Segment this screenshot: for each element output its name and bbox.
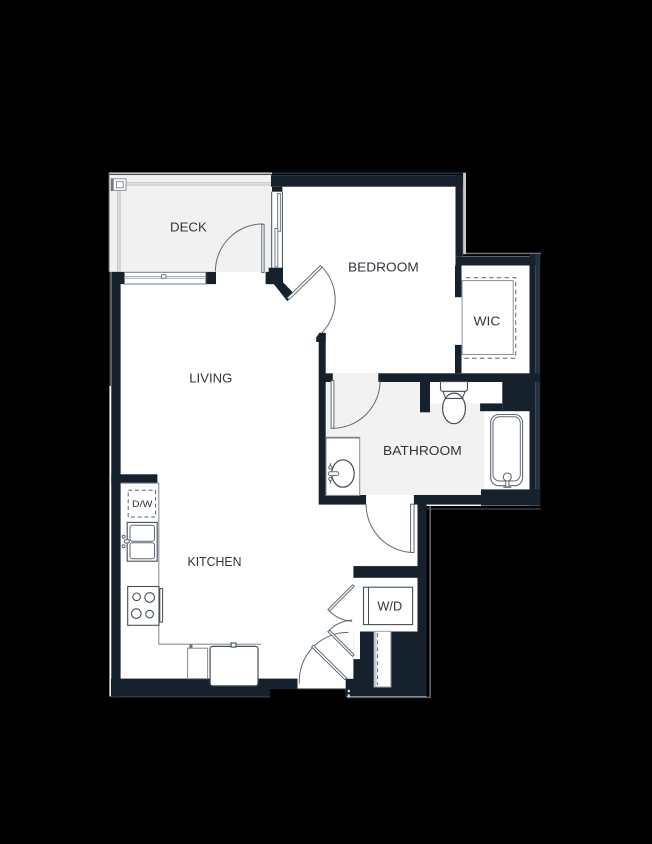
svg-text:W/D: W/D [377, 599, 402, 613]
svg-text:BATHROOM: BATHROOM [383, 443, 462, 458]
svg-text:DECK: DECK [170, 219, 207, 234]
svg-text:LIVING: LIVING [189, 370, 232, 385]
svg-text:BEDROOM: BEDROOM [348, 260, 419, 275]
svg-text:WIC: WIC [474, 313, 501, 328]
svg-text:KITCHEN: KITCHEN [188, 554, 242, 569]
svg-text:D/W: D/W [132, 499, 152, 510]
